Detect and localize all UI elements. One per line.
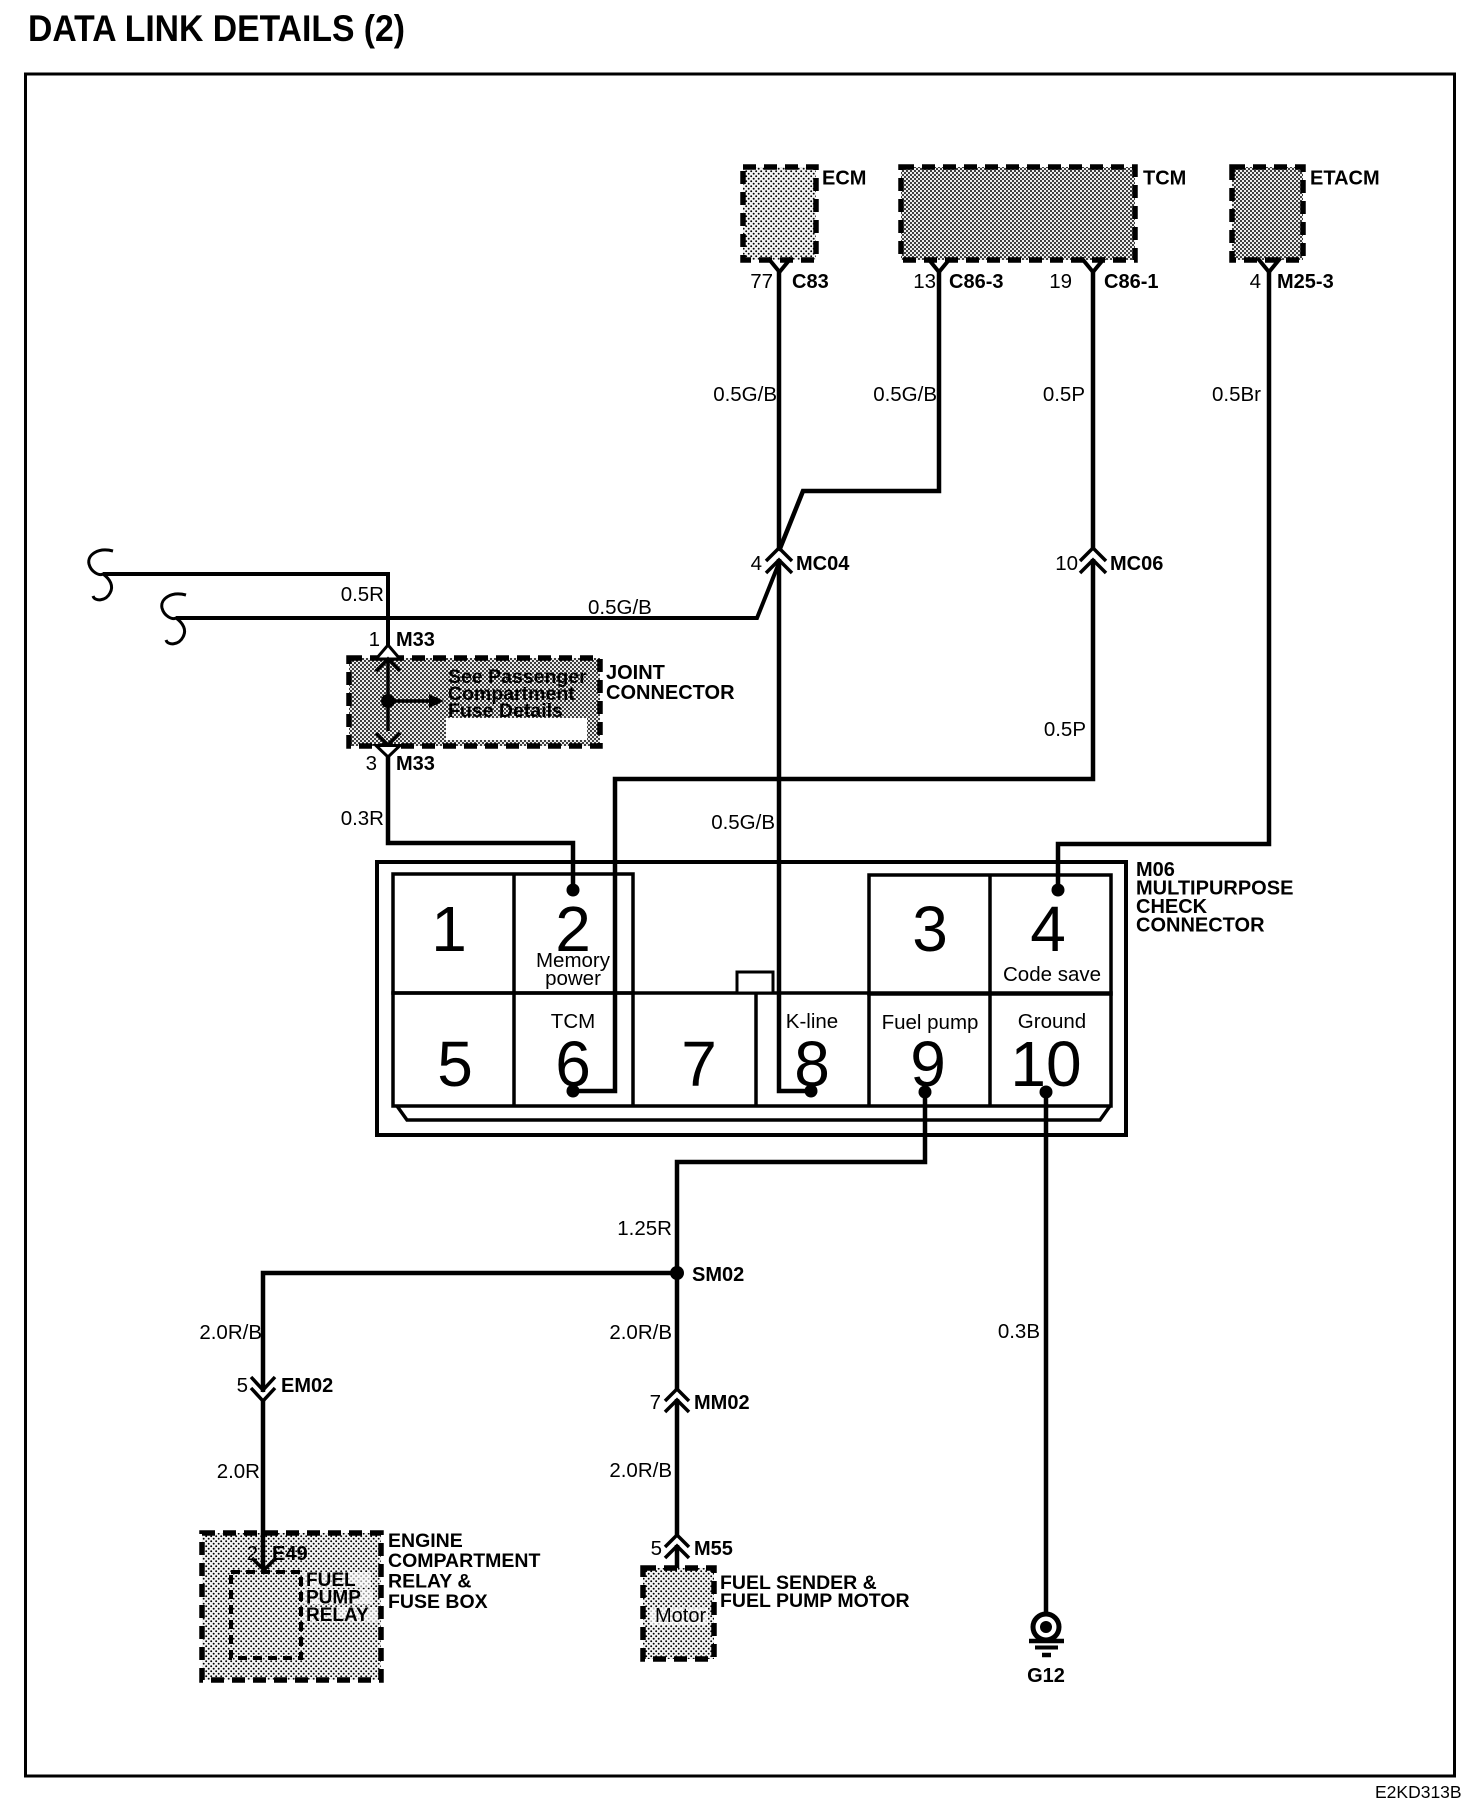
svg-text:EM02: EM02	[281, 1375, 333, 1397]
svg-text:K-line: K-line	[786, 1010, 838, 1033]
svg-text:Fuel pump: Fuel pump	[882, 1011, 979, 1034]
svg-text:2: 2	[247, 1542, 258, 1565]
svg-text:1: 1	[369, 628, 380, 651]
svg-text:CONNECTOR: CONNECTOR	[606, 682, 735, 704]
svg-text:4: 4	[1250, 270, 1261, 293]
svg-text:C86-3: C86-3	[949, 271, 1003, 293]
svg-text:0.5G/B: 0.5G/B	[873, 383, 937, 406]
svg-text:M25-3: M25-3	[1277, 271, 1334, 293]
svg-text:5: 5	[237, 1374, 248, 1397]
svg-text:C86-1: C86-1	[1104, 271, 1158, 293]
svg-text:1: 1	[431, 893, 467, 965]
svg-text:DATA LINK DETAILS (2): DATA LINK DETAILS (2)	[28, 8, 405, 49]
svg-text:1.25R: 1.25R	[617, 1217, 672, 1240]
svg-text:2.0R/B: 2.0R/B	[609, 1321, 672, 1344]
svg-text:FUSE BOX: FUSE BOX	[388, 1591, 488, 1613]
svg-text:3: 3	[366, 752, 377, 775]
svg-text:2.0R: 2.0R	[217, 1460, 260, 1483]
svg-text:RELAY &: RELAY &	[388, 1571, 471, 1593]
svg-text:0.3R: 0.3R	[341, 807, 384, 830]
svg-text:0.5P: 0.5P	[1043, 383, 1085, 406]
svg-text:0.5Br: 0.5Br	[1212, 383, 1261, 406]
svg-text:M55: M55	[694, 1538, 733, 1560]
svg-text:ETACM: ETACM	[1310, 168, 1380, 190]
svg-text:0.5G/B: 0.5G/B	[711, 811, 775, 834]
svg-text:C83: C83	[792, 271, 829, 293]
svg-text:CONNECTOR: CONNECTOR	[1136, 915, 1265, 937]
svg-text:2.0R/B: 2.0R/B	[609, 1459, 672, 1482]
svg-text:power: power	[545, 967, 601, 990]
svg-text:5: 5	[437, 1028, 473, 1100]
svg-text:MC04: MC04	[796, 553, 850, 575]
svg-text:77: 77	[750, 270, 773, 293]
svg-text:Ground: Ground	[1018, 1010, 1086, 1033]
svg-text:0.5G/B: 0.5G/B	[713, 383, 777, 406]
svg-text:ECM: ECM	[822, 168, 866, 190]
svg-text:0.5G/B: 0.5G/B	[588, 596, 652, 619]
svg-text:SM02: SM02	[692, 1264, 744, 1286]
svg-text:0.5P: 0.5P	[1044, 718, 1086, 741]
svg-text:2.0R/B: 2.0R/B	[199, 1321, 262, 1344]
svg-text:0.5R: 0.5R	[341, 583, 384, 606]
svg-text:E2KD313B: E2KD313B	[1375, 1782, 1462, 1802]
svg-text:10: 10	[1055, 552, 1078, 575]
svg-text:4: 4	[1030, 893, 1066, 965]
svg-text:E49: E49	[272, 1543, 308, 1565]
svg-text:4: 4	[751, 552, 762, 575]
svg-text:8: 8	[794, 1028, 830, 1100]
svg-text:FUEL PUMP MOTOR: FUEL PUMP MOTOR	[720, 1590, 910, 1612]
svg-text:M33: M33	[396, 629, 435, 651]
svg-text:MC06: MC06	[1110, 553, 1163, 575]
svg-text:M33: M33	[396, 753, 435, 775]
svg-text:G12: G12	[1027, 1665, 1065, 1687]
svg-text:0.3B: 0.3B	[998, 1320, 1040, 1343]
svg-text:13: 13	[913, 270, 936, 293]
svg-text:COMPARTMENT: COMPARTMENT	[388, 1550, 540, 1572]
svg-text:TCM: TCM	[1143, 168, 1186, 190]
svg-text:7: 7	[650, 1391, 661, 1414]
svg-text:19: 19	[1049, 270, 1072, 293]
svg-text:Motor: Motor	[655, 1605, 706, 1627]
svg-text:Fuse Details: Fuse Details	[448, 700, 563, 722]
svg-text:TCM: TCM	[551, 1010, 595, 1033]
svg-text:3: 3	[912, 893, 948, 965]
svg-text:6: 6	[555, 1028, 591, 1100]
svg-text:7: 7	[681, 1028, 717, 1100]
svg-text:5: 5	[651, 1537, 662, 1560]
svg-text:RELAY: RELAY	[306, 1605, 369, 1626]
svg-text:ENGINE: ENGINE	[388, 1530, 463, 1552]
svg-text:Code save: Code save	[1003, 963, 1101, 986]
svg-text:MM02: MM02	[694, 1392, 750, 1414]
svg-text:JOINT: JOINT	[606, 662, 665, 684]
